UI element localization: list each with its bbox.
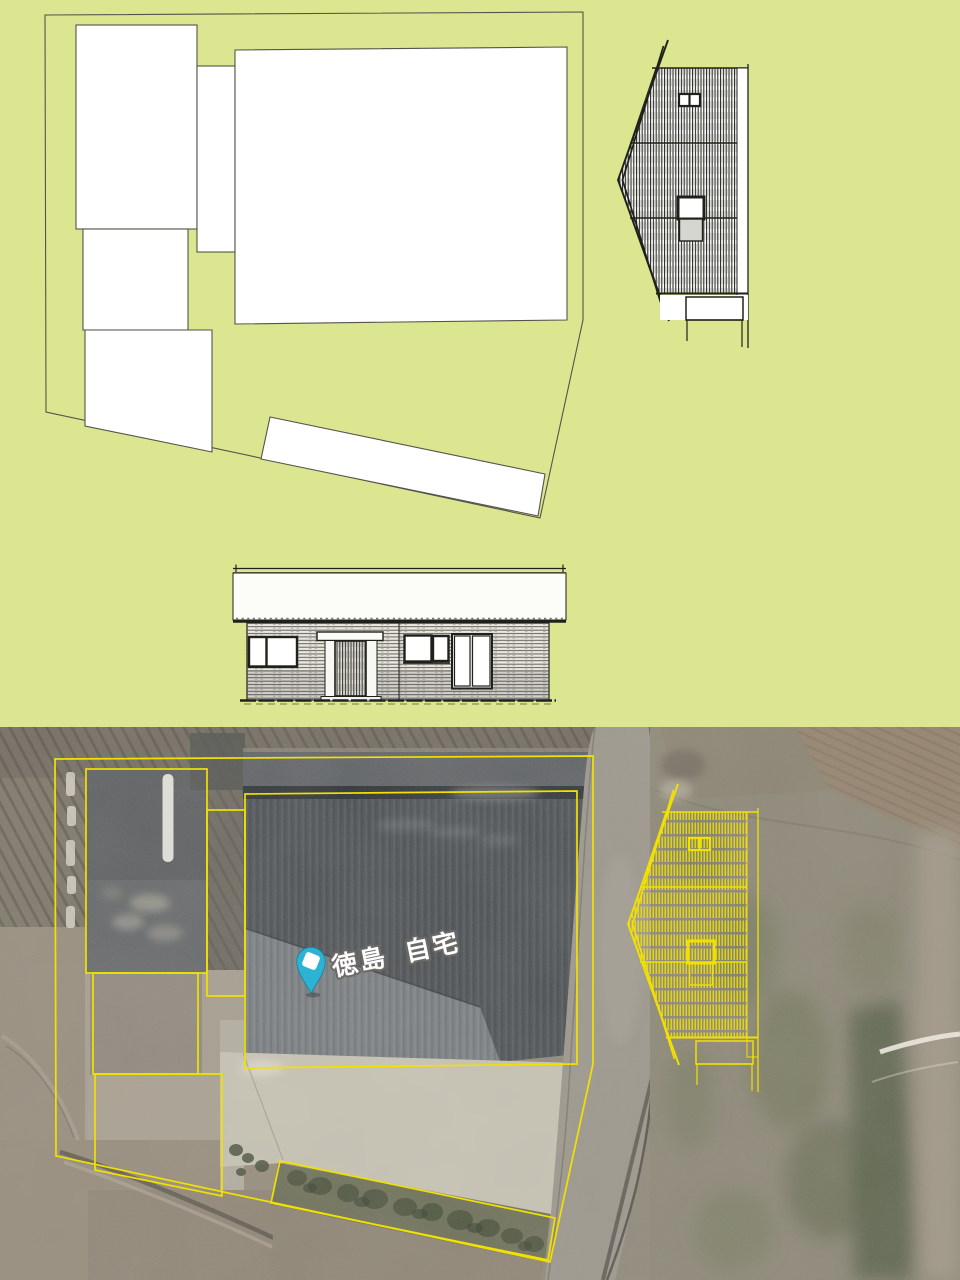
window-right-a [405,636,432,662]
door-canopy [317,632,383,641]
screenshot-root: 徳島 自宅 [0,0,960,1280]
window-right-b [433,636,449,661]
front-elevation-drawing [233,565,566,705]
satellite-photo: 徳島 自宅 [0,727,960,1280]
roof-band [233,573,566,620]
photo-grain [0,727,960,1280]
scene-canvas: 徳島 自宅 [0,0,960,1280]
window-left [249,637,297,667]
